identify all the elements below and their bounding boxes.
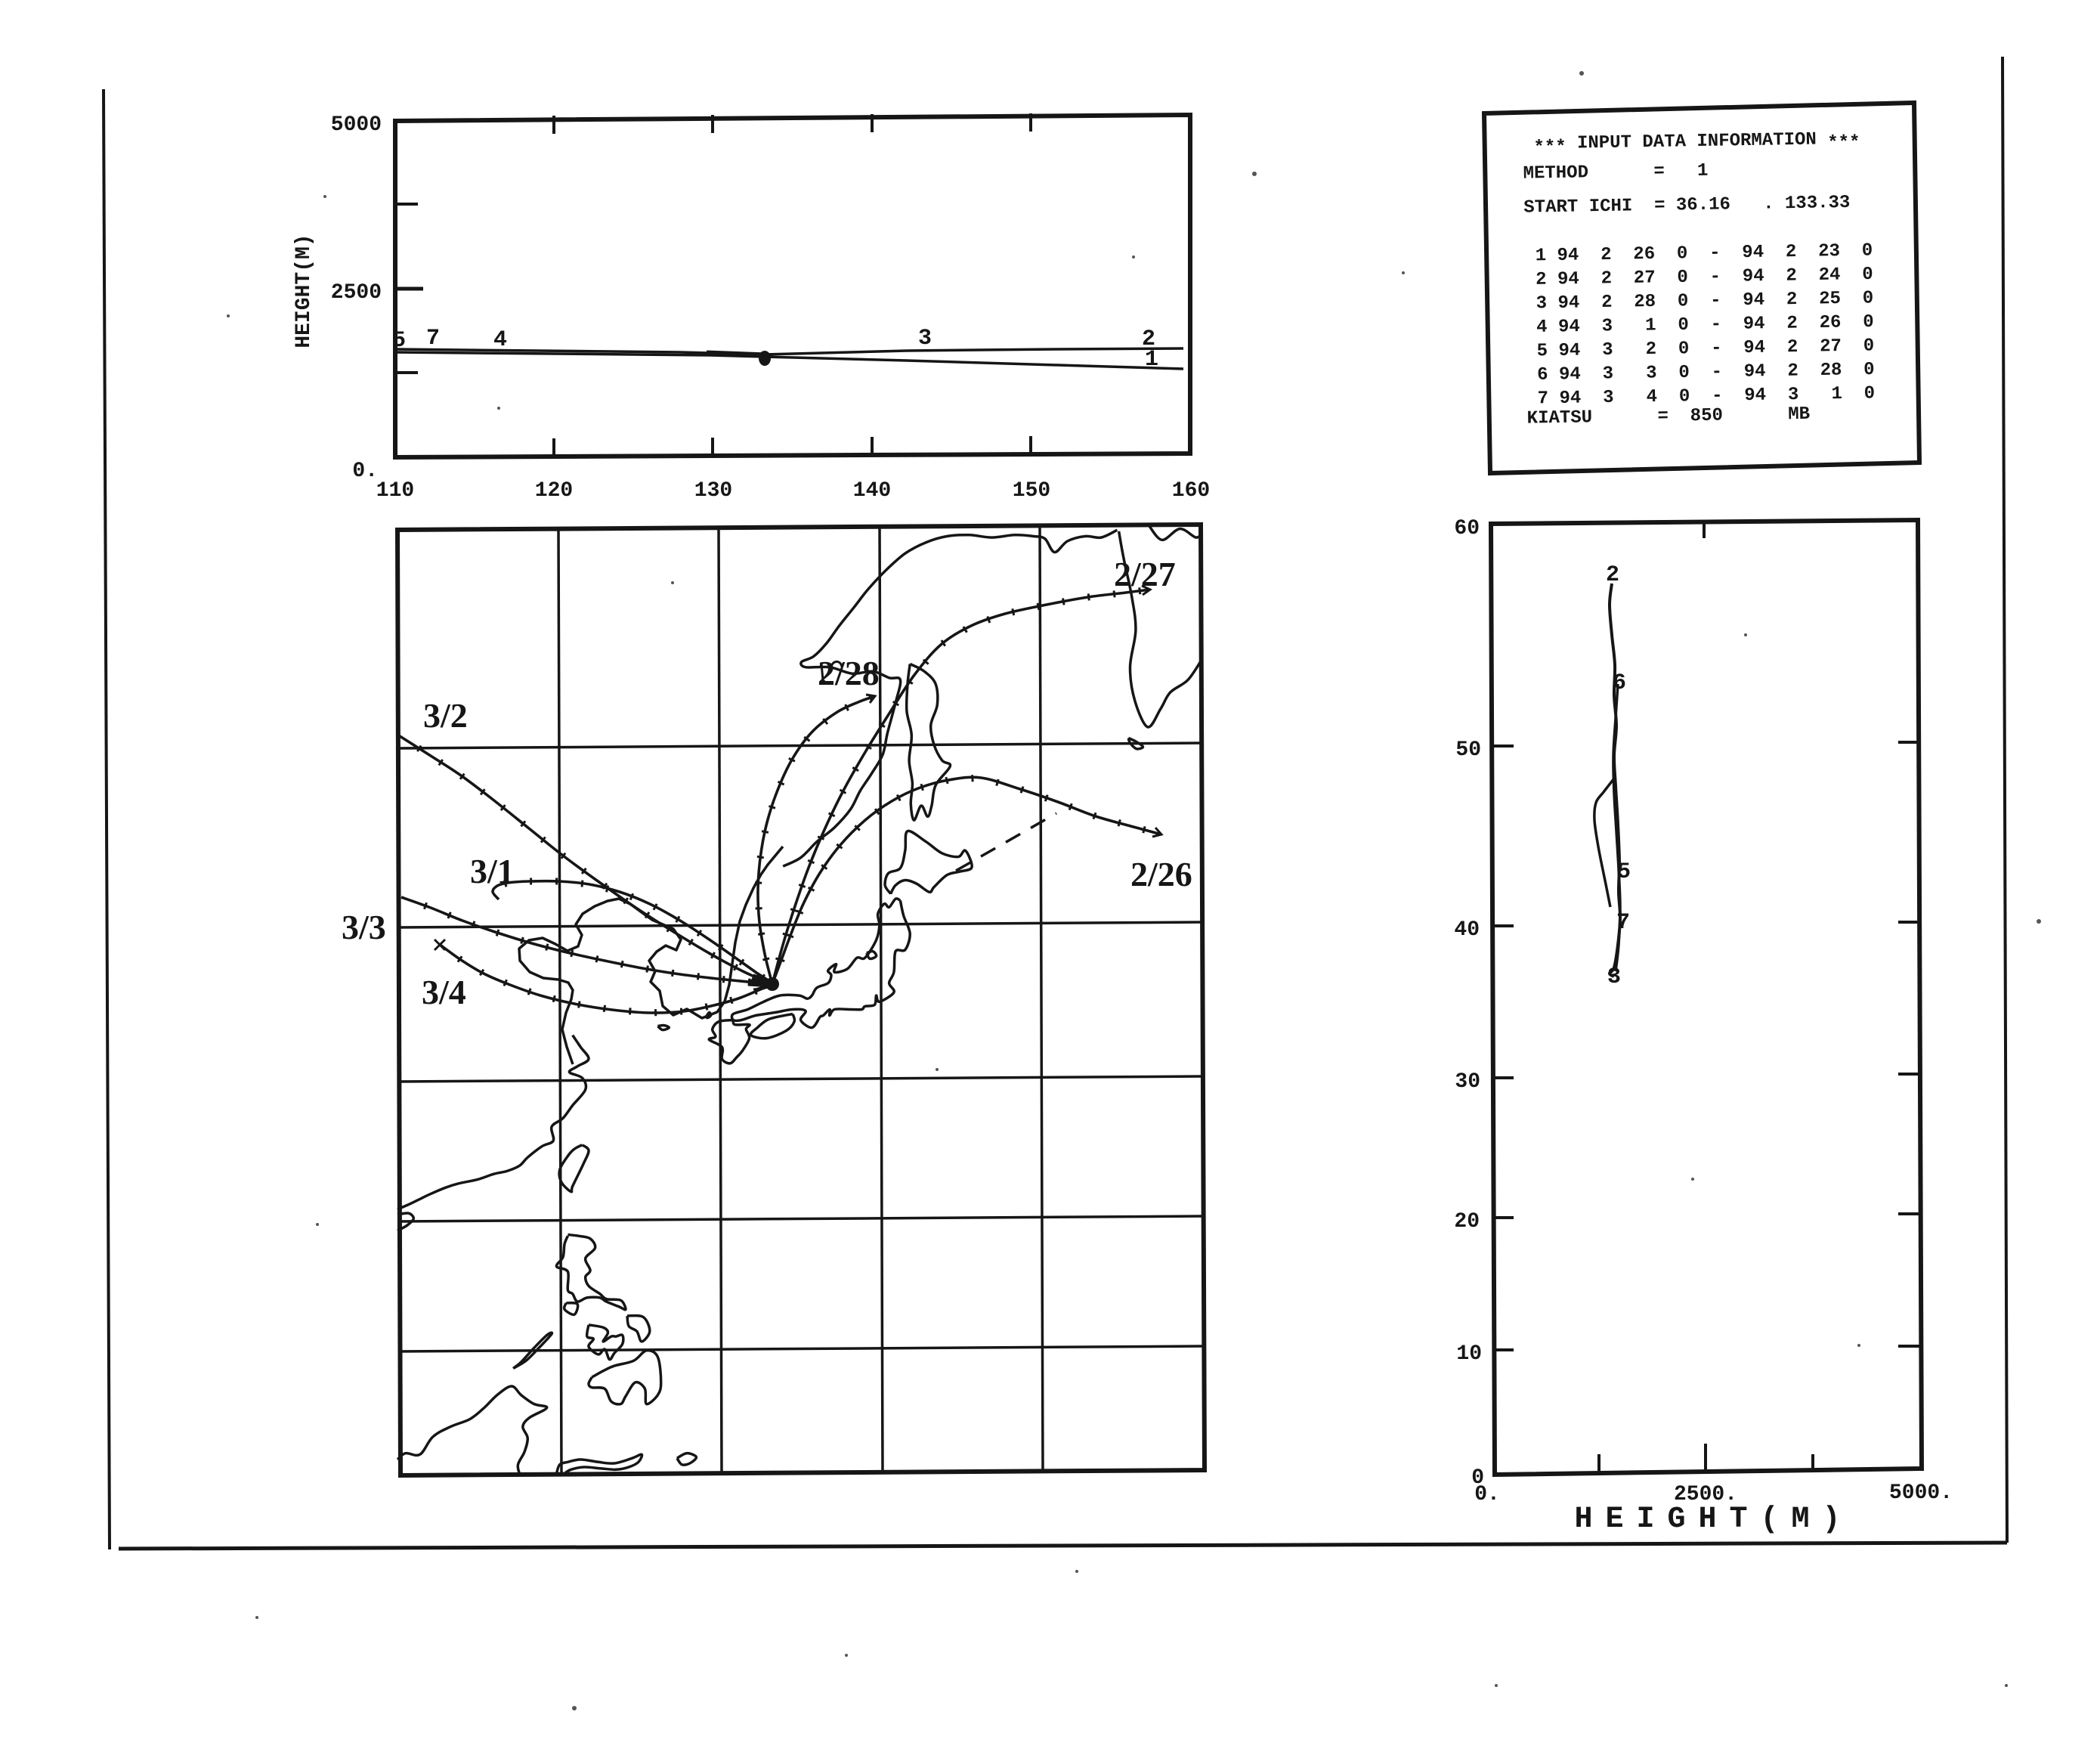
svg-text:METHOD = 1: METHOD = 1 (1523, 161, 1708, 184)
svg-text:10: 10 (1456, 1342, 1482, 1366)
svg-text:2: 2 (1606, 562, 1619, 588)
svg-text:5: 5 (392, 328, 406, 354)
svg-text:50: 50 (1455, 738, 1481, 762)
svg-text:7: 7 (1616, 910, 1630, 936)
svg-text:4: 4 (493, 327, 507, 353)
svg-text:3/4: 3/4 (422, 973, 466, 1011)
svg-text:3/3: 3/3 (342, 908, 386, 946)
svg-text:2/27: 2/27 (1114, 555, 1176, 593)
svg-text:20: 20 (1454, 1210, 1480, 1234)
svg-text:3: 3 (1607, 964, 1621, 990)
svg-text:110: 110 (376, 479, 414, 503)
svg-text:0.: 0. (352, 460, 378, 483)
svg-text:3/2: 3/2 (423, 696, 468, 735)
svg-text:7: 7 (426, 326, 440, 351)
svg-text:HEIGHT(M): HEIGHT(M) (292, 234, 316, 348)
svg-text:2500: 2500 (331, 281, 382, 305)
svg-text:30: 30 (1455, 1070, 1480, 1094)
svg-text:160: 160 (1172, 479, 1210, 503)
svg-text:60: 60 (1454, 517, 1480, 540)
svg-text:130: 130 (694, 479, 732, 503)
svg-text:150: 150 (1013, 479, 1050, 503)
svg-text:6: 6 (1613, 670, 1626, 696)
svg-text:3: 3 (918, 326, 932, 351)
svg-text:140: 140 (853, 479, 891, 503)
svg-text:40: 40 (1454, 918, 1480, 942)
svg-text:5000: 5000 (331, 113, 382, 137)
svg-text:2/26: 2/26 (1130, 855, 1192, 893)
svg-text:HEIGHT(M): HEIGHT(M) (1574, 1503, 1853, 1537)
svg-text:2/28: 2/28 (818, 654, 880, 692)
svg-text:5: 5 (1617, 859, 1631, 885)
svg-text:120: 120 (535, 479, 573, 503)
svg-text:0.: 0. (1474, 1483, 1500, 1506)
svg-text:5000.: 5000. (1889, 1481, 1953, 1505)
svg-text:1: 1 (1145, 347, 1158, 373)
svg-text:3/1: 3/1 (470, 852, 515, 890)
